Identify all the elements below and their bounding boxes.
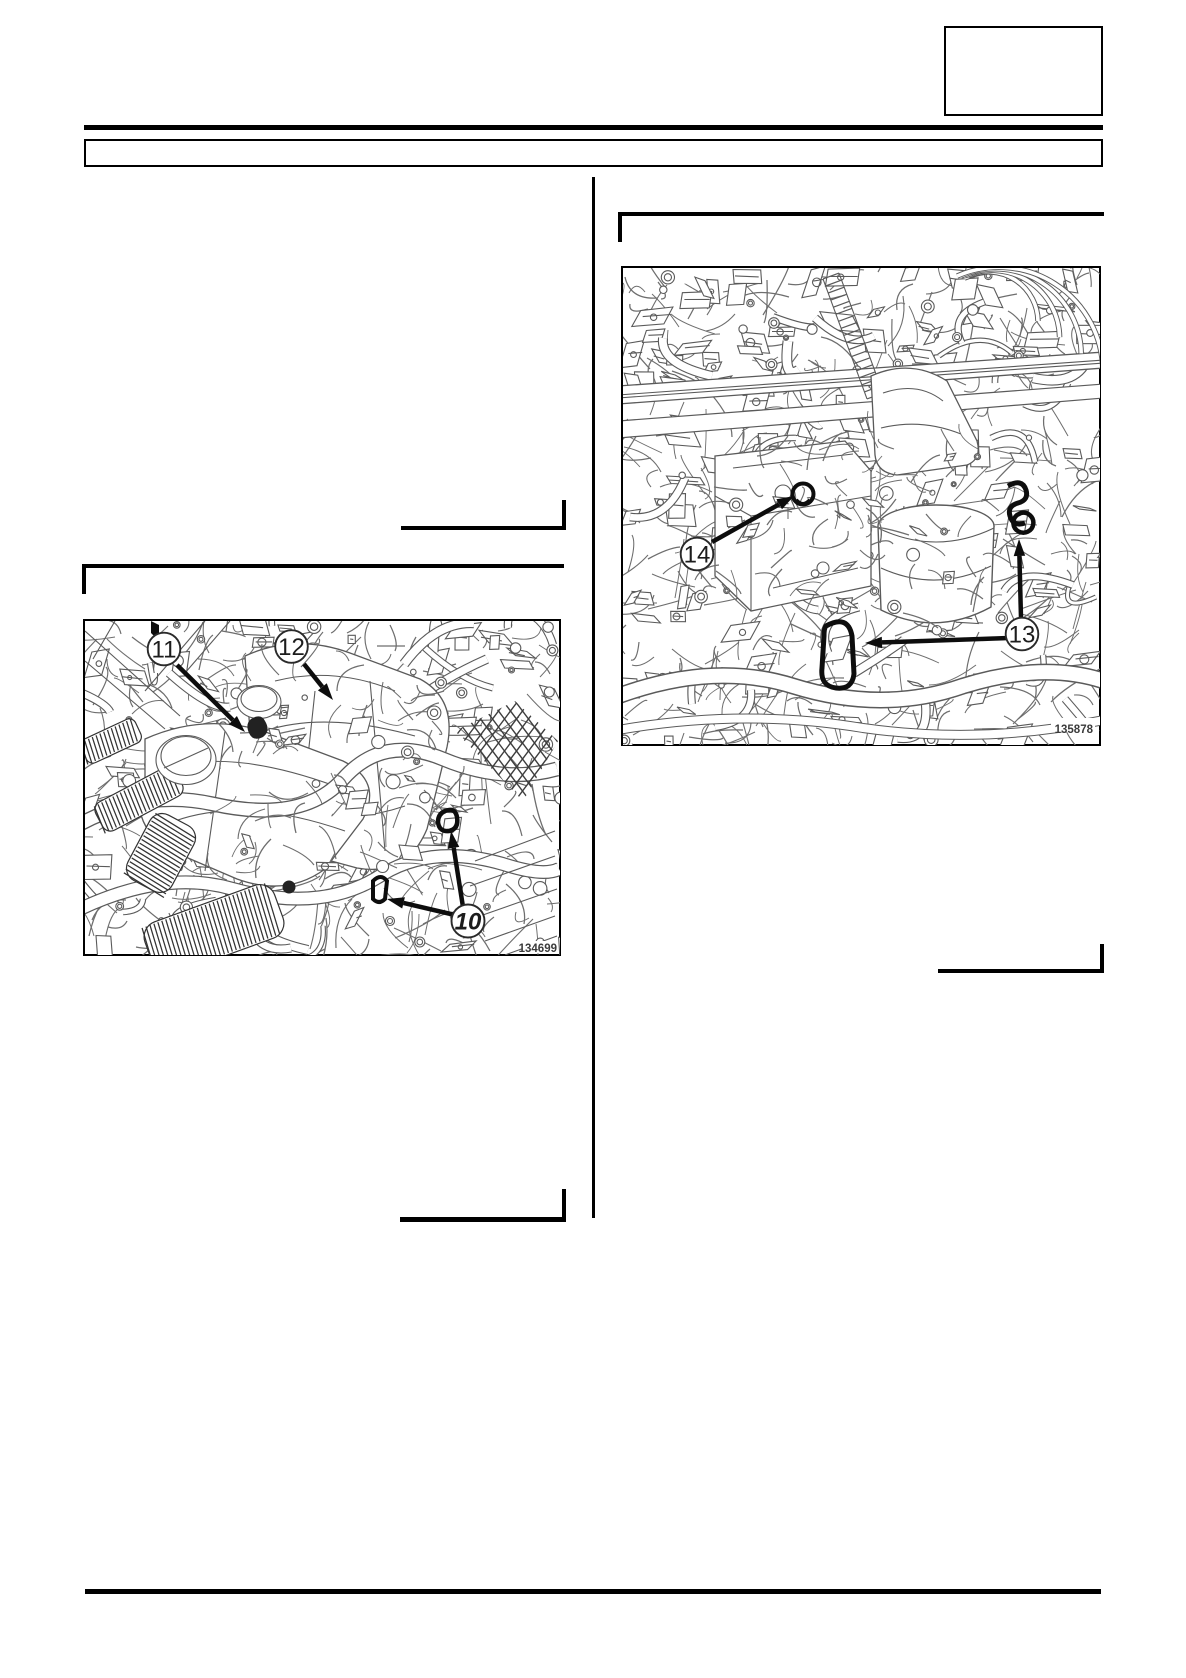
svg-text:13: 13: [1009, 622, 1036, 649]
svg-text:12: 12: [278, 634, 305, 661]
svg-text:14: 14: [684, 542, 711, 569]
svg-text:134699: 134699: [519, 943, 557, 955]
svg-text:135878: 135878: [1055, 724, 1094, 736]
svg-text:11: 11: [152, 637, 177, 664]
svg-text:10: 10: [455, 909, 482, 936]
